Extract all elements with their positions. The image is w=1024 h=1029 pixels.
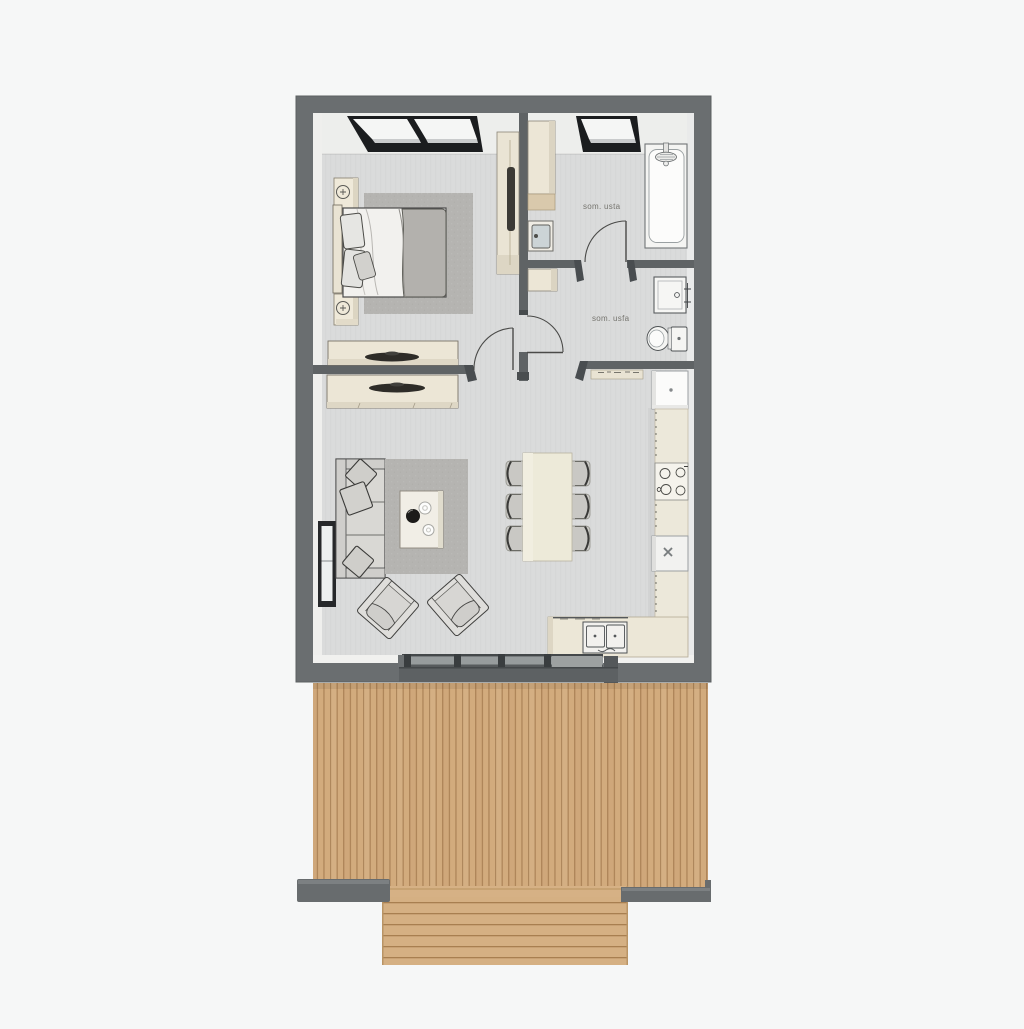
- svg-text:som. usfa: som. usfa: [592, 314, 630, 323]
- svg-text:som. usta: som. usta: [583, 202, 621, 211]
